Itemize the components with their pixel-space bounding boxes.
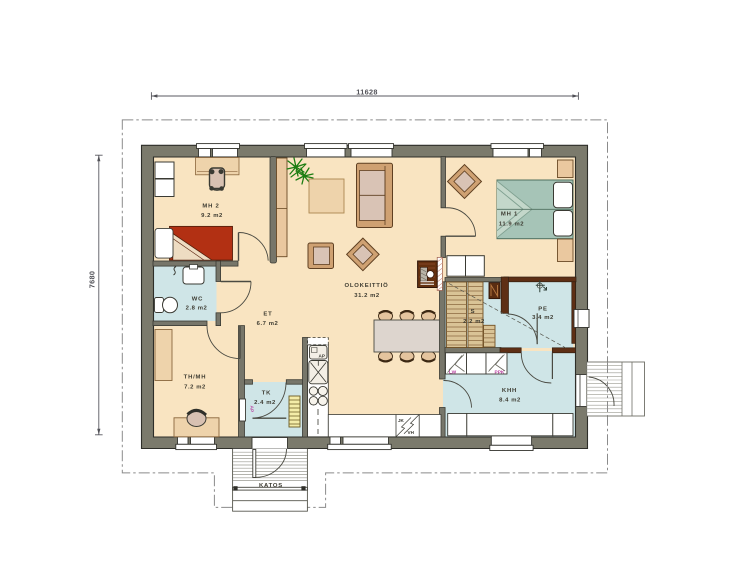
svg-text:11628: 11628 [356, 87, 377, 96]
svg-text:TK: TK [262, 390, 271, 396]
svg-text:KATOS: KATOS [259, 483, 283, 489]
svg-text:MH 1: MH 1 [501, 212, 518, 218]
svg-text:TH/MH: TH/MH [184, 375, 207, 381]
svg-text:11.9 m2: 11.9 m2 [499, 221, 524, 227]
svg-text:7680: 7680 [88, 271, 97, 288]
svg-text:ET: ET [263, 311, 272, 317]
svg-text:VH: VH [408, 430, 415, 435]
svg-text:7.2 m2: 7.2 m2 [184, 384, 206, 390]
svg-text:2.8 m2: 2.8 m2 [186, 306, 208, 312]
svg-text:OLOKEITTIÖ: OLOKEITTIÖ [345, 282, 389, 289]
svg-text:9.2 m2: 9.2 m2 [201, 213, 223, 219]
svg-text:2.2 m2: 2.2 m2 [463, 319, 485, 325]
svg-text:PPK: PPK [495, 369, 505, 375]
svg-text:2.4 m2: 2.4 m2 [254, 400, 276, 406]
svg-text:WC: WC [192, 297, 203, 303]
svg-text:AP: AP [319, 353, 325, 358]
svg-text:8.4 m2: 8.4 m2 [499, 398, 521, 404]
svg-text:KHH: KHH [502, 388, 517, 394]
svg-text:PE: PE [538, 306, 547, 312]
svg-text:S: S [471, 309, 476, 315]
svg-text:3.4 m2: 3.4 m2 [532, 315, 554, 321]
svg-text:JK: JK [398, 418, 405, 423]
svg-text:6.7 m2: 6.7 m2 [257, 321, 279, 327]
svg-text:LW: LW [449, 369, 457, 375]
svg-text:31.2 m2: 31.2 m2 [354, 293, 380, 299]
svg-text:MH 2: MH 2 [202, 204, 219, 210]
svg-text:AP: AP [249, 406, 255, 413]
